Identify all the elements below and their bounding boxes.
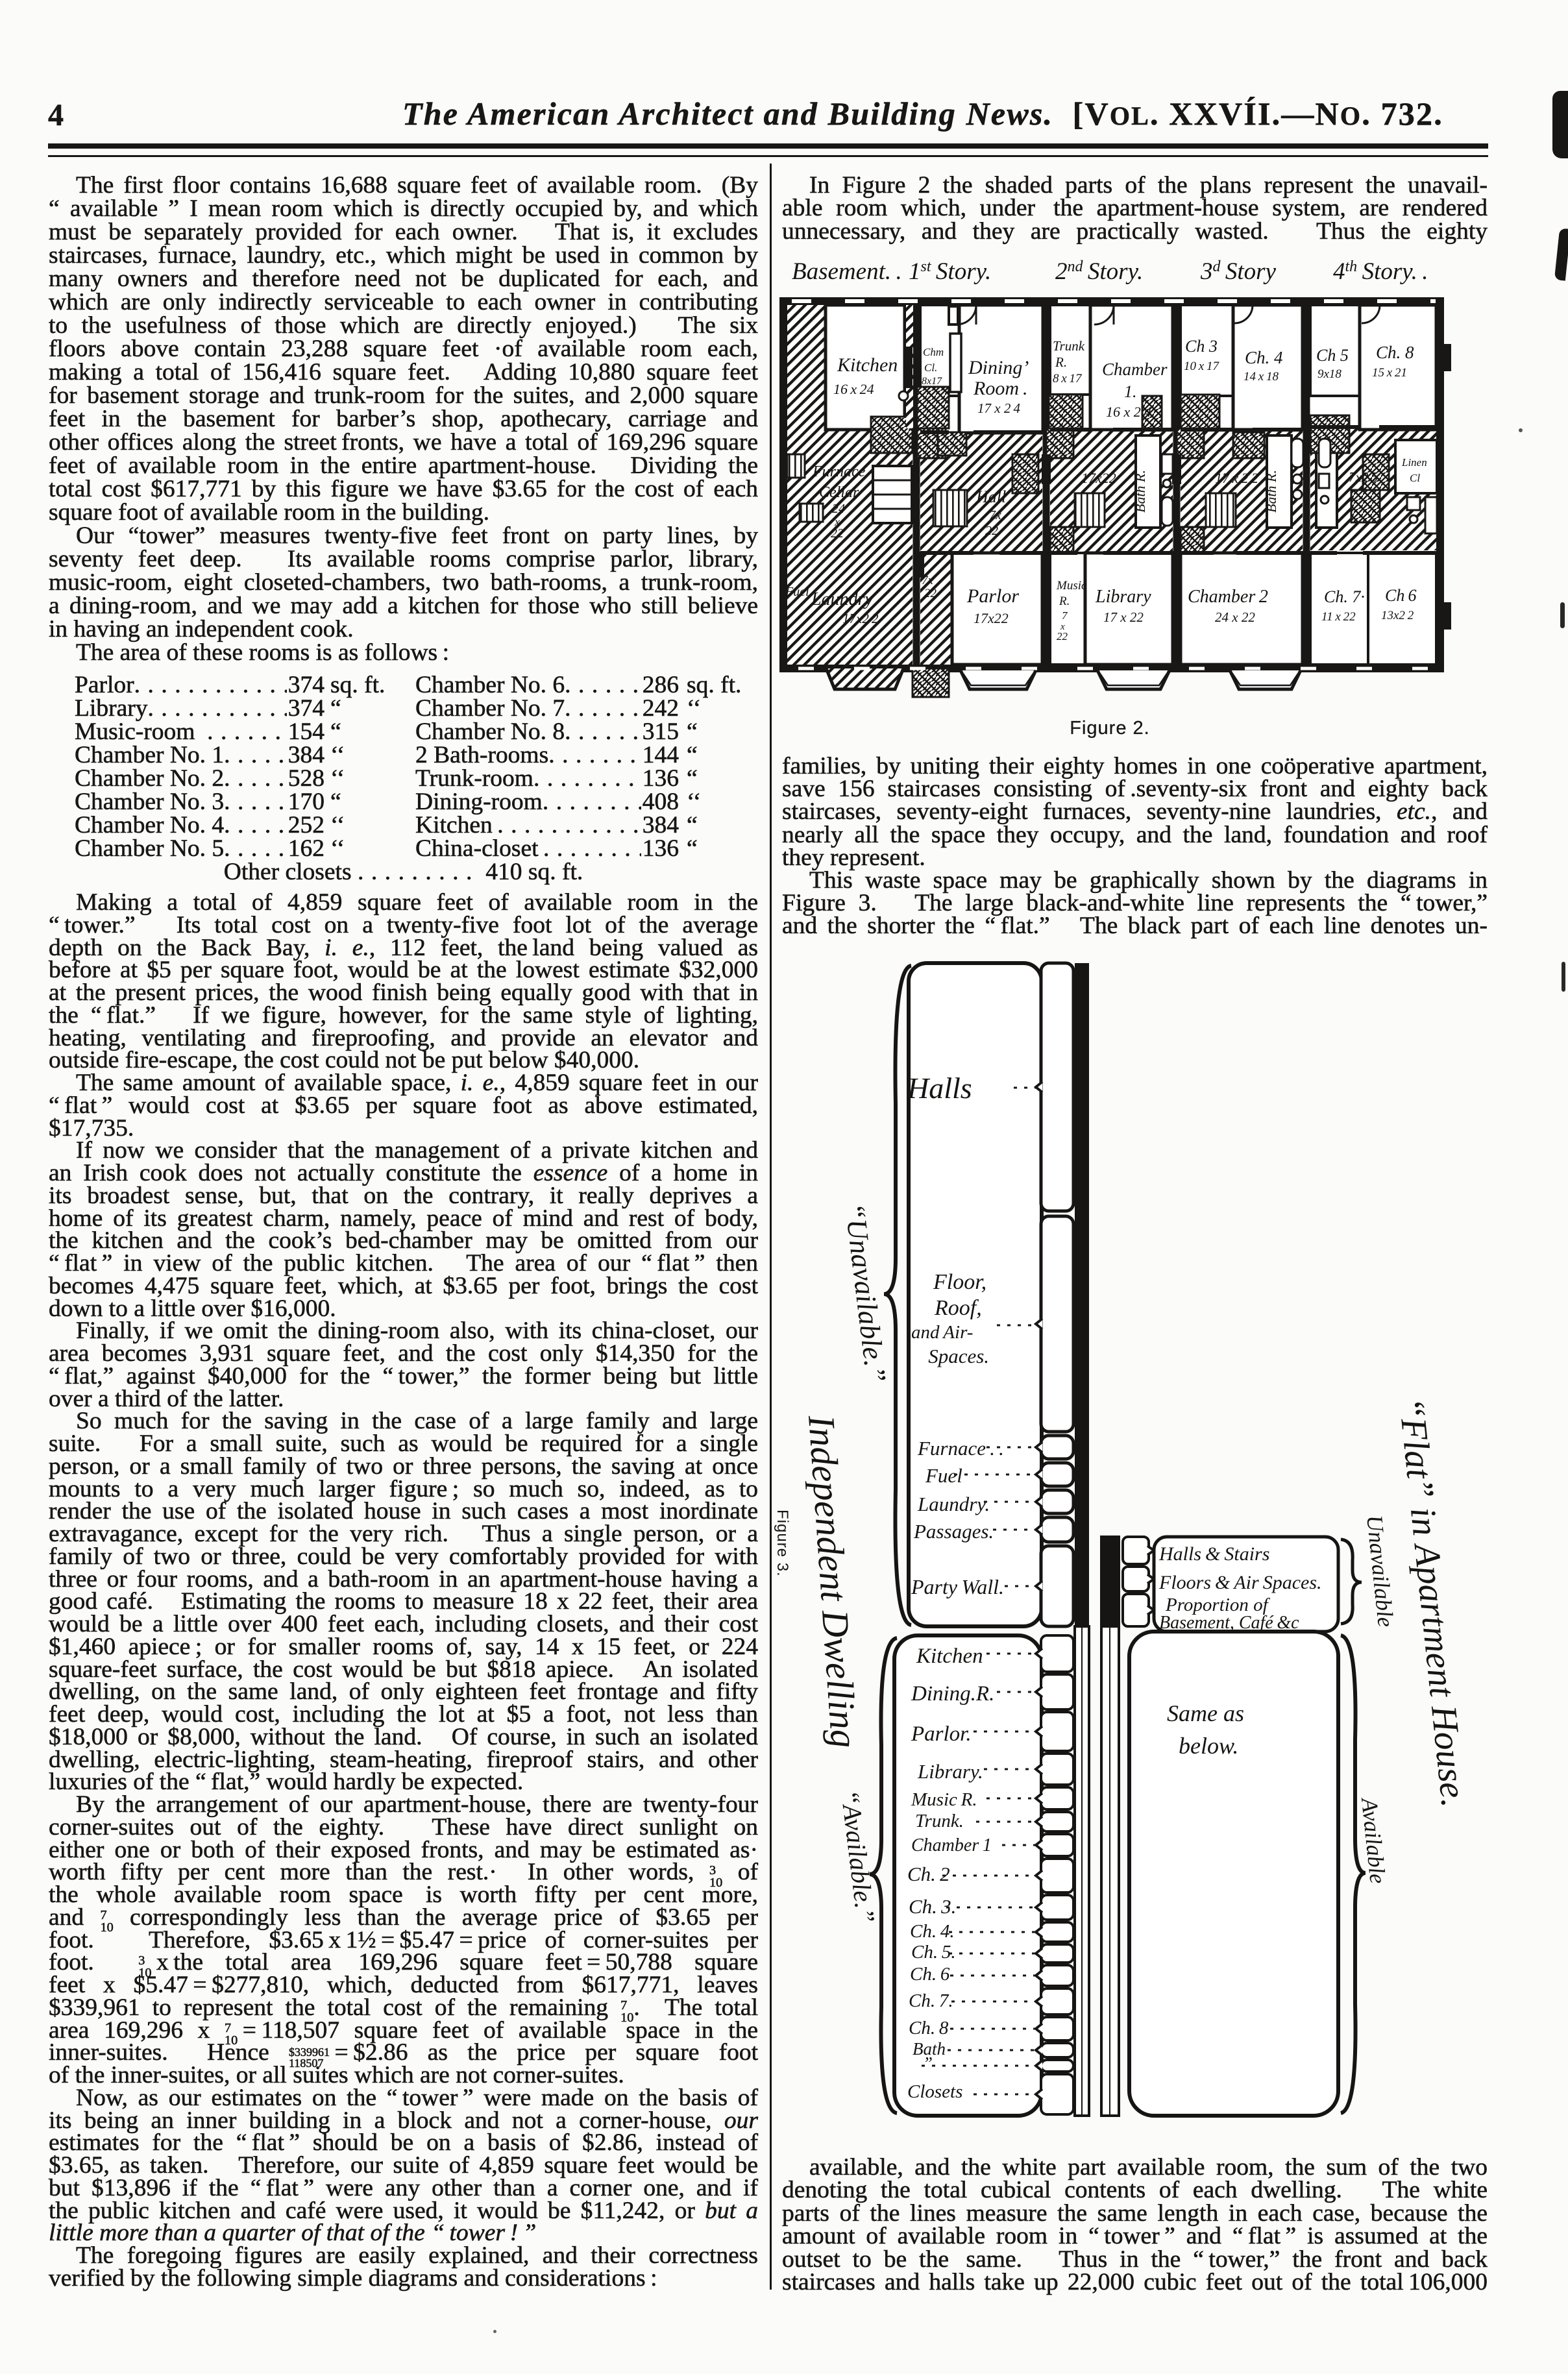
svg-text:17 x 2 2: 17 x 2 2 xyxy=(1215,470,1258,486)
svg-text:Cl.: Cl. xyxy=(924,361,937,374)
svg-text:R.: R. xyxy=(1055,354,1067,370)
svg-text:1st Story.: 1st Story. xyxy=(909,258,991,285)
svg-text:22: 22 xyxy=(985,524,998,538)
svg-text:17x22: 17x22 xyxy=(1081,470,1116,486)
svg-text:7x: 7x xyxy=(922,574,934,587)
svg-text:Trunk.: Trunk. xyxy=(915,1811,964,1831)
svg-text:below.: below. xyxy=(1179,1733,1238,1759)
svg-text:Closets: Closets xyxy=(907,2081,962,2102)
svg-text:Room .: Room . xyxy=(973,378,1028,399)
svg-text:Kitchen: Kitchen xyxy=(837,354,898,376)
svg-text:Dining’: Dining’ xyxy=(968,357,1029,378)
svg-text:Party Wall.: Party Wall. xyxy=(911,1575,1004,1598)
svg-text:4th Story. .: 4th Story. . xyxy=(1333,258,1428,285)
svg-text:Cl: Cl xyxy=(1410,472,1420,484)
svg-text:Furnace . .: Furnace . . xyxy=(917,1437,1004,1460)
svg-text:R.: R. xyxy=(1059,594,1070,608)
svg-text:Chamber 1: Chamber 1 xyxy=(911,1835,992,1855)
svg-text:11 x 22: 11 x 22 xyxy=(1321,610,1356,624)
svg-text:24 x 22: 24 x 22 xyxy=(1215,609,1255,625)
svg-text:Linen: Linen xyxy=(1401,456,1427,469)
svg-text:Halls & Stairs: Halls & Stairs xyxy=(1158,1543,1269,1565)
svg-text:Ch. 8: Ch. 8 xyxy=(909,2018,949,2038)
svg-text:Laundry.: Laundry. xyxy=(917,1493,990,1515)
svg-text:Ch. 5.: Ch. 5. xyxy=(911,1942,956,1963)
svg-text:Kitchen: Kitchen xyxy=(916,1645,983,1668)
svg-text:17x22: 17x22 xyxy=(974,610,1009,626)
svg-text:9x18: 9x18 xyxy=(1317,367,1341,381)
svg-text:Ch 3: Ch 3 xyxy=(1185,337,1218,356)
svg-text:Chamber: Chamber xyxy=(1102,360,1168,379)
svg-text:Ch. 8: Ch. 8 xyxy=(1376,343,1414,362)
svg-text:8x17: 8x17 xyxy=(922,376,942,387)
svg-text:Dining.R.: Dining.R. xyxy=(911,1682,994,1706)
svg-text:22: 22 xyxy=(831,526,844,541)
svg-text:17 x 22: 17 x 22 xyxy=(1103,609,1144,625)
svg-text:1.: 1. xyxy=(1124,382,1137,401)
svg-text:Spaces.: Spaces. xyxy=(924,1345,989,1367)
svg-text:Chamber 2: Chamber 2 xyxy=(1188,587,1268,607)
svg-text:Ch 5: Ch 5 xyxy=(1316,346,1349,365)
svg-text:17 x 2 4: 17 x 2 4 xyxy=(977,400,1021,416)
svg-text:Ch. 6: Ch. 6 xyxy=(910,1964,950,1985)
svg-text:7x2 5: 7x2 5 xyxy=(1349,469,1378,485)
svg-text:8 x 17: 8 x 17 xyxy=(1053,372,1083,385)
svg-text:Bath R.: Bath R. xyxy=(1263,470,1279,513)
svg-text:Furnace: Furnace xyxy=(812,463,866,480)
svg-text:Hall: Hall xyxy=(975,487,1006,506)
svg-text:Same as: Same as xyxy=(1167,1700,1244,1726)
svg-text:Fuel: Fuel xyxy=(925,1464,962,1487)
svg-text:16 x 24: 16 x 24 xyxy=(833,381,874,397)
svg-text:10 x 17: 10 x 17 xyxy=(1184,360,1220,373)
svg-text:15 x 21: 15 x 21 xyxy=(1372,366,1407,380)
svg-text:Passages.: Passages. xyxy=(913,1520,994,1543)
svg-text:22: 22 xyxy=(1057,630,1068,642)
svg-text:Fuel: Fuel xyxy=(785,585,809,599)
svg-text:Figure 3.: Figure 3. xyxy=(774,1510,791,1577)
svg-text:Ch. 4: Ch. 4 xyxy=(1245,348,1283,367)
svg-text:Floors & Air Spaces.: Floors & Air Spaces. xyxy=(1158,1572,1322,1593)
svg-text:Music: Music xyxy=(1056,579,1087,593)
svg-text:Cellar: Cellar xyxy=(819,484,859,501)
svg-text:Basement, Café &c: Basement, Café &c xyxy=(1159,1613,1299,1633)
svg-text:Trunk: Trunk xyxy=(1053,338,1085,354)
svg-text:Roof,: Roof, xyxy=(934,1296,982,1320)
svg-text:Floor,: Floor, xyxy=(933,1270,986,1294)
svg-text:Laundry: Laundry xyxy=(811,589,873,609)
svg-text:Basement. .: Basement. . xyxy=(792,258,902,285)
svg-text:Unavailable: Unavailable xyxy=(1362,1514,1399,1628)
svg-text:and Air-: and Air- xyxy=(911,1322,973,1343)
svg-text:13x2 2: 13x2 2 xyxy=(1381,609,1414,622)
svg-text:Independent Dwelling: Independent Dwelling xyxy=(800,1413,866,1749)
svg-text:Library.: Library. xyxy=(917,1760,983,1783)
svg-text:Parlor.: Parlor. xyxy=(911,1722,972,1746)
svg-text:22: 22 xyxy=(924,587,937,600)
svg-text:Ch 6: Ch 6 xyxy=(1385,586,1417,605)
svg-text:7x: 7x xyxy=(989,508,1001,522)
svg-text:Ch. 7·: Ch. 7· xyxy=(1324,587,1365,606)
svg-text:24: 24 xyxy=(832,502,845,516)
svg-text:Ch. 4.: Ch. 4. xyxy=(910,1921,955,1942)
svg-text:Chm: Chm xyxy=(923,346,944,358)
svg-text:2nd Story.: 2nd Story. xyxy=(1055,258,1143,285)
svg-text:“Flat” in Apartment House.: “Flat” in Apartment House. xyxy=(1391,1396,1474,1809)
svg-text:Bath R.: Bath R. xyxy=(1132,470,1148,513)
svg-text:Parlor: Parlor xyxy=(966,585,1019,607)
svg-text:“Available.”: “Available.” xyxy=(835,1789,881,1925)
svg-text:Halls: Halls xyxy=(907,1071,972,1105)
svg-text:Ch. 2: Ch. 2 xyxy=(907,1863,950,1885)
svg-text:Library: Library xyxy=(1095,587,1151,607)
svg-text:16 x 2 4: 16 x 2 4 xyxy=(1106,404,1151,420)
svg-text:Music R.: Music R. xyxy=(911,1789,977,1810)
svg-text:”: ” xyxy=(923,2053,933,2073)
svg-text:17x2 2: 17x2 2 xyxy=(842,611,879,626)
svg-text:Ch. 3.: Ch. 3. xyxy=(909,1895,956,1918)
svg-text:Ch. 7.: Ch. 7. xyxy=(909,1990,953,2011)
svg-text:14 x 18: 14 x 18 xyxy=(1243,370,1279,384)
svg-text:3d Story: 3d Story xyxy=(1200,258,1277,285)
